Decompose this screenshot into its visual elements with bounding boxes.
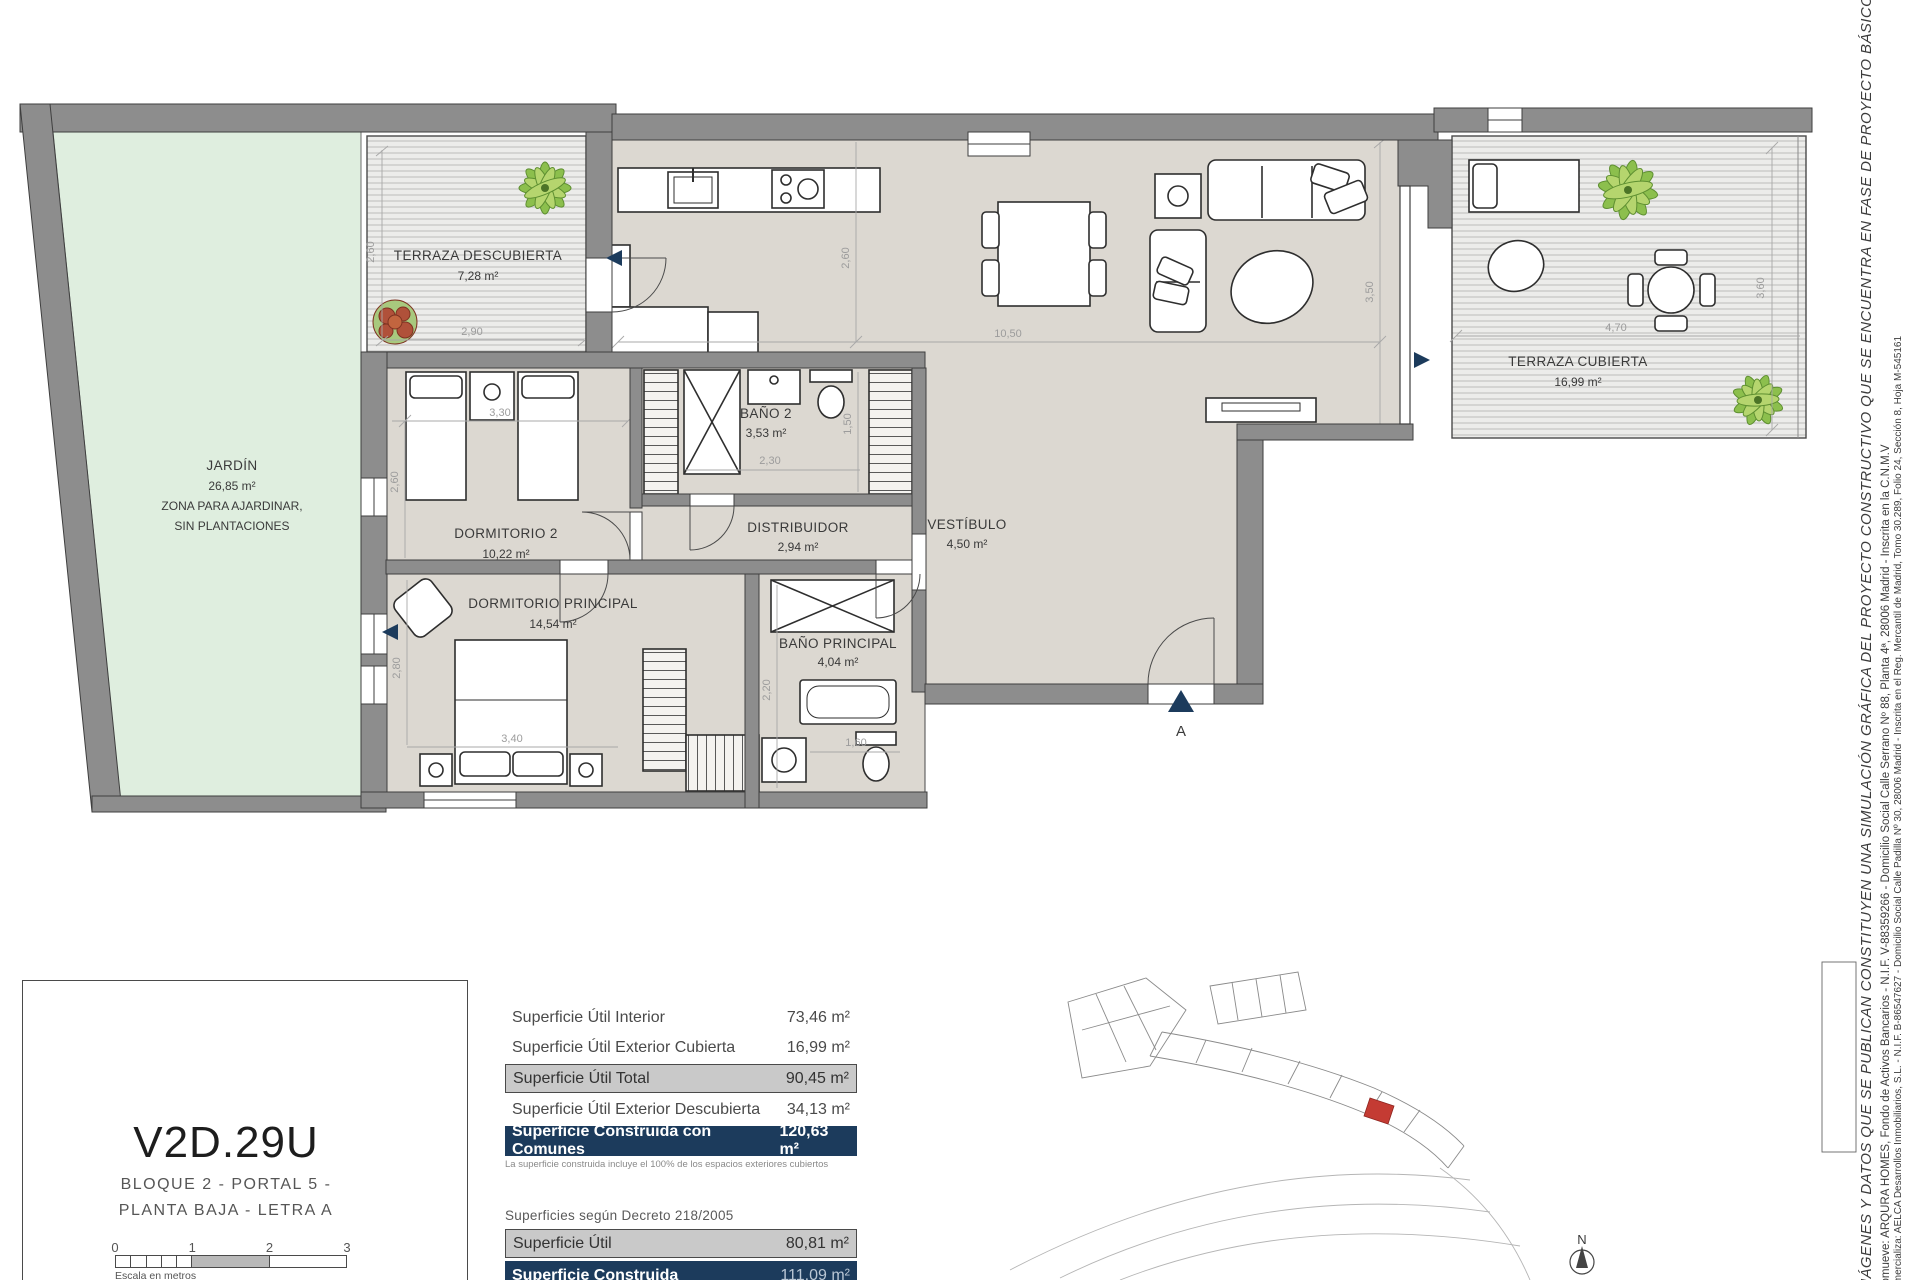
north-label: N — [1577, 1232, 1586, 1247]
kitchen-cabinet — [708, 312, 758, 358]
pillow — [522, 376, 574, 398]
dim-label: 2,90 — [461, 326, 482, 338]
kitchen-island — [608, 307, 708, 359]
terrace-chair — [1700, 274, 1715, 306]
unit-block-line: BLOQUE 2 - PORTAL 5 - — [95, 1176, 357, 1194]
toilet-bowl — [818, 386, 844, 418]
dim-label: 1,50 — [842, 413, 854, 434]
surface-label: Superficie Útil Exterior Cubierta — [512, 1039, 735, 1057]
room-label: DORMITORIO 2 — [454, 526, 558, 541]
room-note: SIN PLANTACIONES — [174, 519, 289, 533]
decree-row: Superficie Útil 80,81 m² — [505, 1229, 857, 1258]
dim-label: 3,60 — [1755, 277, 1767, 298]
bush-plant-icon — [373, 300, 417, 344]
room-label: BAÑO 2 — [740, 406, 792, 421]
room-area: 3,53 m² — [746, 426, 787, 440]
surface-label: Superficie Útil Interior — [512, 1009, 665, 1027]
room-label: DISTRIBUIDOR — [747, 520, 849, 535]
surface-row: Superficie Útil Exterior Cubierta 16,99 … — [505, 1034, 857, 1061]
dim-label: 2,20 — [761, 679, 773, 700]
pillow — [1473, 164, 1497, 208]
pillow — [410, 376, 462, 398]
scale-caption: Escala en metros — [115, 1270, 347, 1280]
dim-label: 2,60 — [840, 247, 852, 268]
room-note: ZONA PARA AJARDINAR, — [161, 499, 302, 513]
nightstand — [570, 754, 602, 786]
room-label: TERRAZA CUBIERTA — [1508, 354, 1647, 369]
surface-row-constructed: Superficie Construida con Comunes 120,63… — [505, 1126, 857, 1156]
room-area: 7,28 m² — [458, 269, 499, 283]
wardrobe — [643, 649, 686, 771]
surface-label: Superficie Construida — [512, 1267, 678, 1280]
dim-label: 2,60 — [365, 241, 377, 262]
dining-chair — [982, 212, 999, 248]
surface-value: 120,63 m² — [779, 1123, 850, 1159]
door-opening — [690, 494, 734, 506]
decree-title: Superficies según Decreto 218/2005 — [505, 1208, 857, 1223]
dim-label: 10,50 — [994, 328, 1022, 340]
toilet-tank — [810, 370, 852, 382]
palm-plant-icon — [519, 162, 571, 214]
scale-bar-graphic — [115, 1255, 347, 1268]
legal-disclaimer-line1: IMÁGENES Y DATOS QUE SE PUBLICAN CONSTIT… — [1858, 0, 1875, 1280]
north-compass-icon: N — [1570, 1232, 1594, 1274]
site-building — [1210, 972, 1306, 1024]
round-table — [1648, 267, 1694, 313]
surface-row: Superficie Útil Interior 73,46 m² — [505, 1004, 857, 1031]
arrow-icon — [1414, 352, 1430, 368]
dim-label: 1,60 — [845, 737, 866, 749]
surface-label: Superficie Útil Exterior Descubierta — [512, 1101, 760, 1119]
surface-value: 80,81 m² — [786, 1235, 849, 1253]
wardrobe — [869, 370, 912, 494]
surface-row: Superficie Útil Exterior Descubierta 34,… — [505, 1096, 857, 1123]
dim-label: 2,30 — [759, 455, 780, 467]
dim-label: 4,70 — [1605, 322, 1626, 334]
tv-icon — [1222, 403, 1300, 411]
room-area: 4,50 m² — [947, 537, 988, 551]
surface-label: Superficie Útil Total — [513, 1070, 650, 1088]
scale-tick: 3 — [343, 1240, 350, 1255]
sink — [748, 370, 800, 404]
room-area: 4,04 m² — [818, 655, 859, 669]
legal-disclaimer-line3: Comercializa: AELCA Desarrollos Inmobili… — [1893, 336, 1904, 1280]
decree-row-constructed: Superficie Construida 111,09 m² — [505, 1261, 857, 1280]
surface-value: 111,09 m² — [780, 1267, 850, 1280]
scale-tick: 0 — [111, 1240, 118, 1255]
scale-tick: 2 — [266, 1240, 273, 1255]
door-opening — [560, 560, 608, 574]
dining-table — [982, 202, 1106, 306]
room-label: JARDÍN — [206, 458, 257, 473]
site-plan-highlighted-unit — [1364, 1098, 1394, 1124]
dim-label: 3,40 — [501, 733, 522, 745]
glass-wall — [1400, 186, 1410, 424]
surface-value: 73,46 m² — [787, 1009, 850, 1027]
surface-value: 16,99 m² — [787, 1039, 850, 1057]
pillow — [513, 752, 563, 776]
entrance-marker-label: A — [1176, 723, 1186, 740]
door-opening — [630, 512, 642, 560]
dining-chair — [1089, 260, 1106, 296]
room-label: TERRAZA DESCUBIERTA — [394, 248, 562, 263]
door-opening — [586, 258, 612, 312]
dining-chair — [1089, 212, 1106, 248]
unit-floor-line: PLANTA BAJA - LETRA A — [95, 1202, 357, 1220]
room-label: VESTÍBULO — [927, 517, 1006, 532]
sink — [762, 738, 806, 782]
room-area: 2,94 m² — [778, 540, 819, 554]
floorplan-page: 2,60 2,90 2,60 10,50 3,50 3,30 2,60 2,30… — [0, 0, 1920, 1280]
surface-value: 34,13 m² — [787, 1101, 850, 1119]
dining-chair — [982, 260, 999, 296]
legal-disclaimer-line2: Promueve: ARQURA HOMES, Fondo de Activos… — [1880, 444, 1892, 1280]
room-area: 14,54 m² — [529, 617, 576, 631]
side-table — [1155, 174, 1201, 218]
room-label: DORMITORIO PRINCIPAL — [468, 596, 638, 611]
room-label: BAÑO PRINCIPAL — [779, 636, 897, 651]
wardrobe — [644, 370, 678, 494]
room-area: 26,85 m² — [208, 479, 255, 493]
scale-bar: 0 1 2 3 Escala en metros — [115, 1240, 347, 1280]
surface-footnote: La superficie construida incluye el 100%… — [505, 1159, 857, 1170]
site-building-row — [1150, 1056, 1448, 1168]
scale-tick: 1 — [189, 1240, 196, 1255]
unit-info: V2D.29U BLOQUE 2 - PORTAL 5 - PLANTA BAJ… — [95, 1118, 357, 1220]
site-plan — [1010, 962, 1856, 1280]
surface-table: Superficie Útil Interior 73,46 m² Superf… — [505, 1004, 857, 1280]
room-area: 16,99 m² — [1554, 375, 1601, 389]
surface-label: Superficie Útil — [513, 1235, 612, 1253]
dim-label: 2,80 — [391, 657, 403, 678]
dim-label: 3,30 — [489, 407, 510, 419]
surface-value: 90,45 m² — [786, 1070, 849, 1088]
room-area: 10,22 m² — [482, 547, 529, 561]
unit-code: V2D.29U — [95, 1118, 357, 1168]
surface-row-total: Superficie Útil Total 90,45 m² — [505, 1064, 857, 1093]
terrace-chair — [1628, 274, 1643, 306]
pillow — [460, 752, 510, 776]
surface-label: Superficie Construida con Comunes — [512, 1123, 779, 1159]
dim-label: 2,60 — [389, 471, 401, 492]
terrace-chair — [1655, 316, 1687, 331]
nightstand — [420, 754, 452, 786]
dim-label: 3,50 — [1364, 281, 1376, 302]
terrace-chair — [1655, 250, 1687, 265]
